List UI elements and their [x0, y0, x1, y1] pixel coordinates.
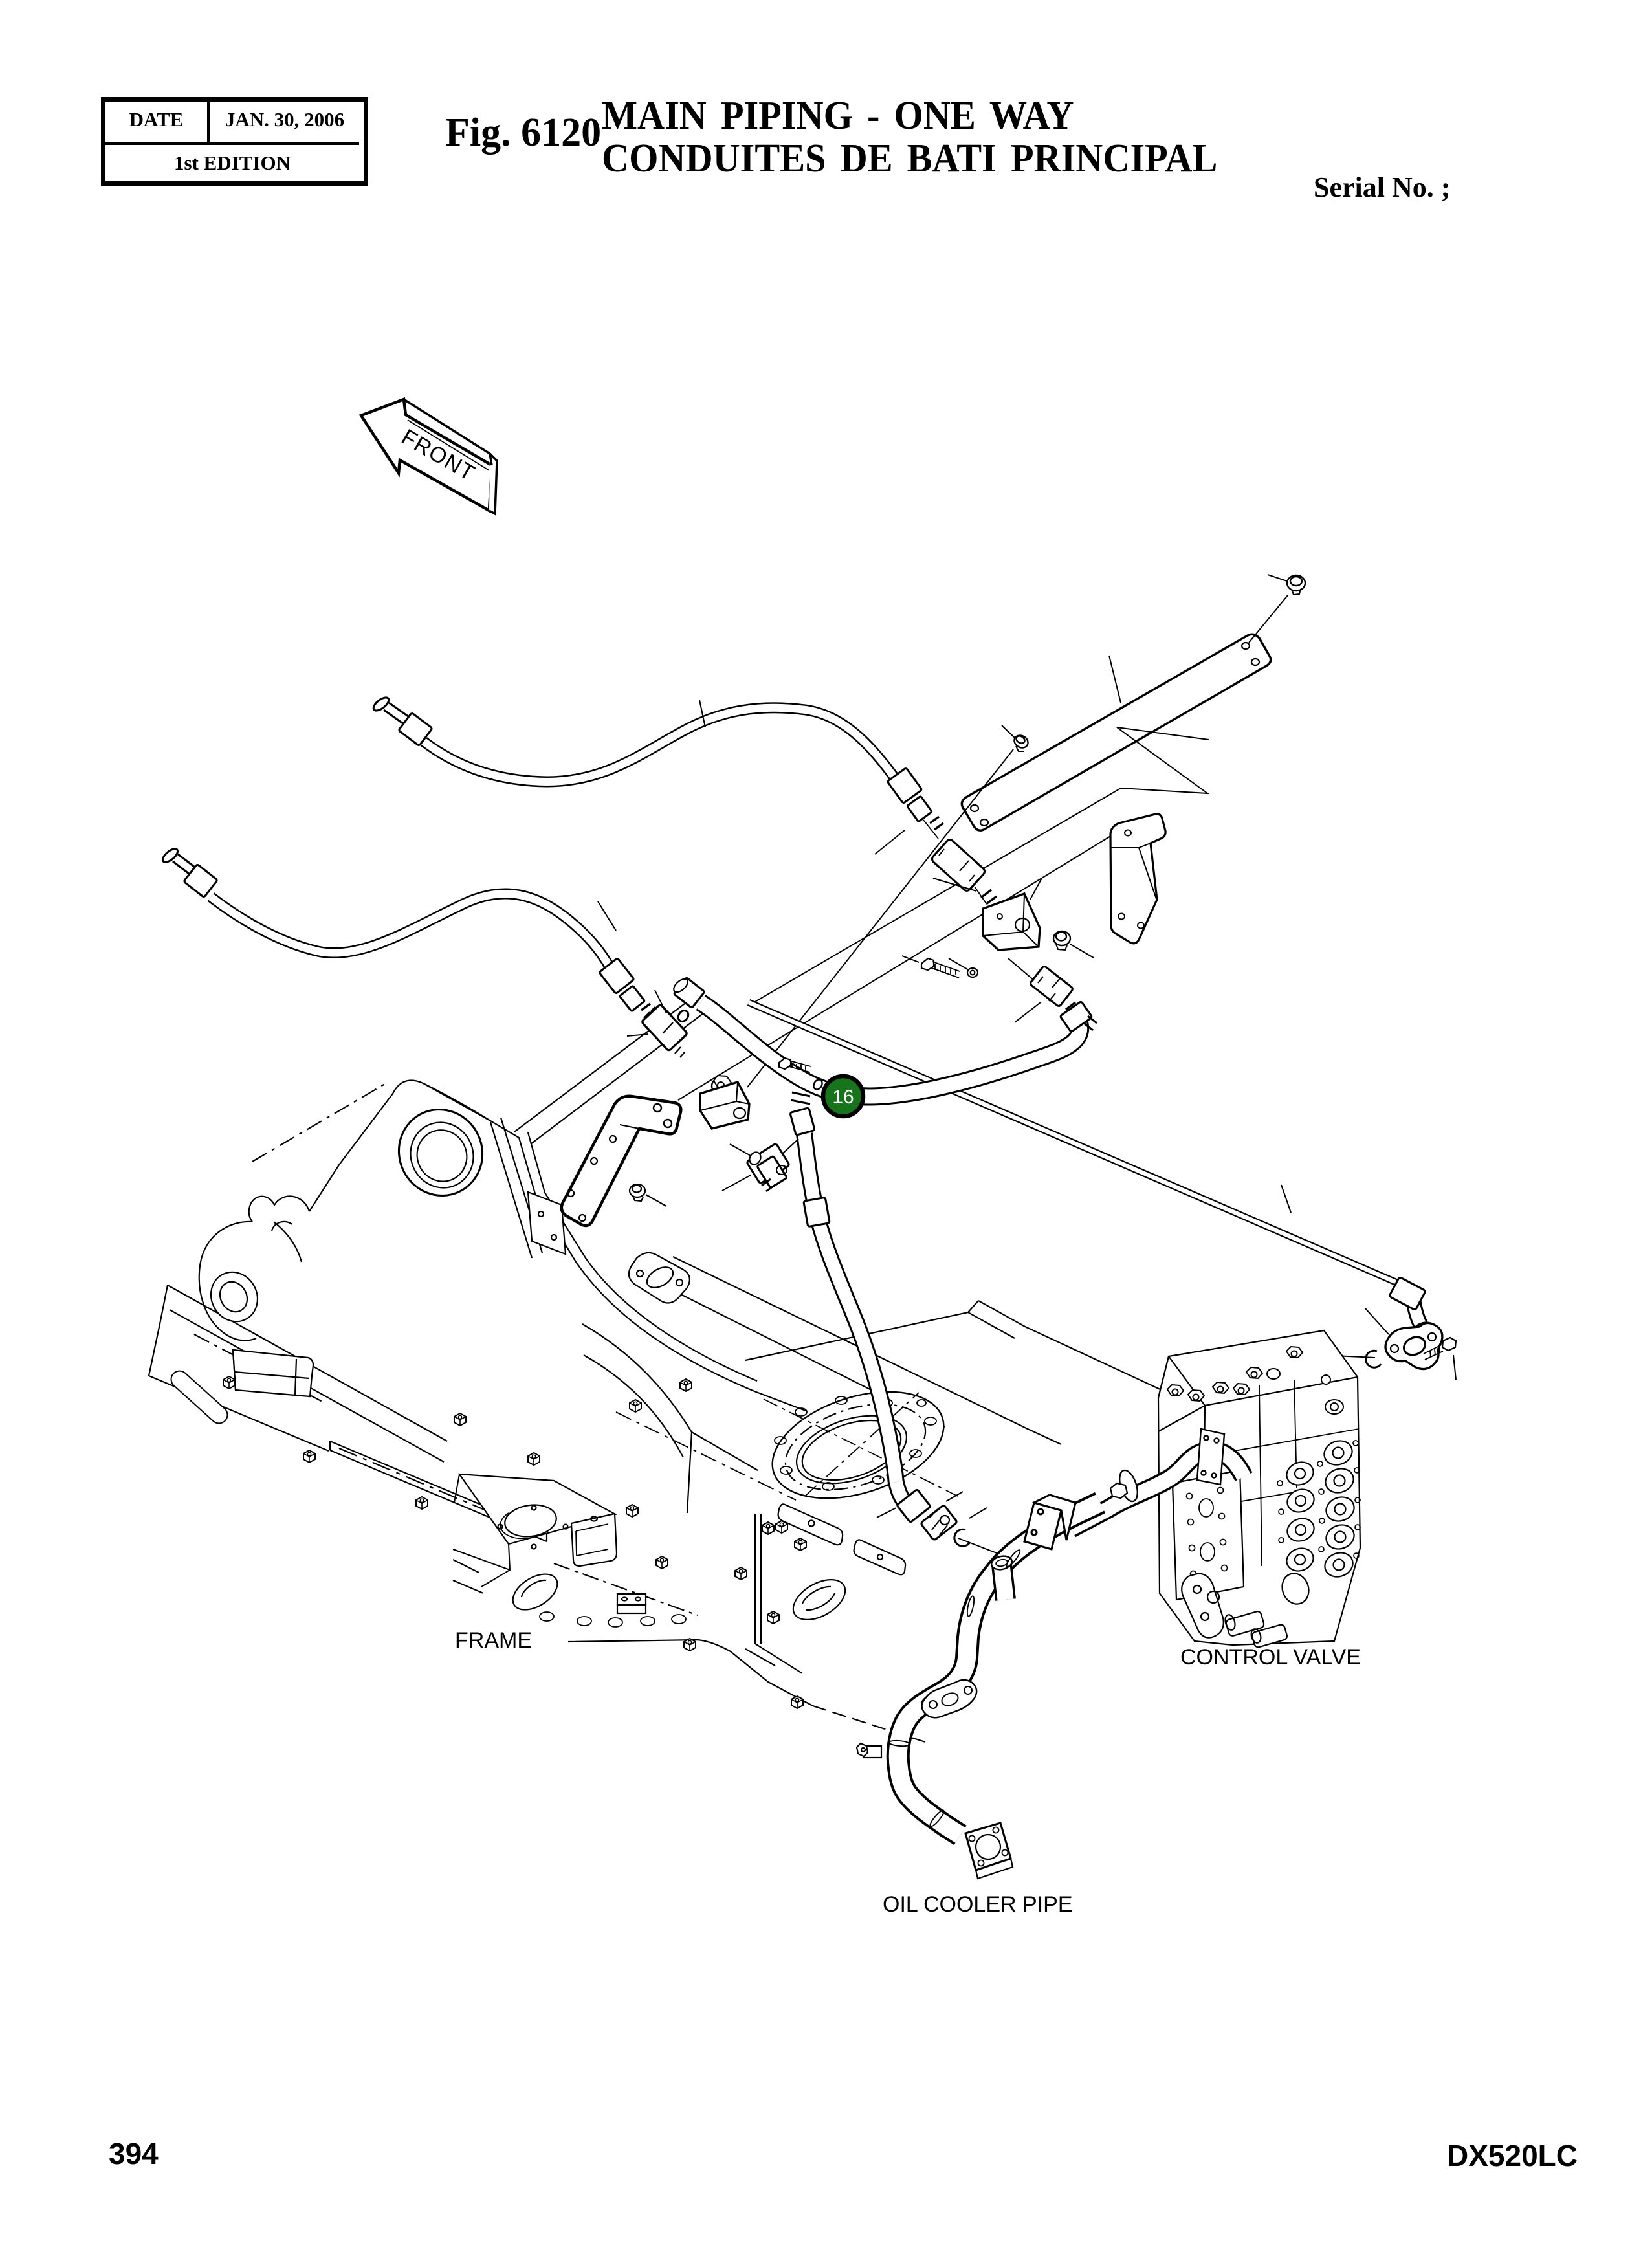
svg-text:16: 16 — [832, 1087, 854, 1108]
